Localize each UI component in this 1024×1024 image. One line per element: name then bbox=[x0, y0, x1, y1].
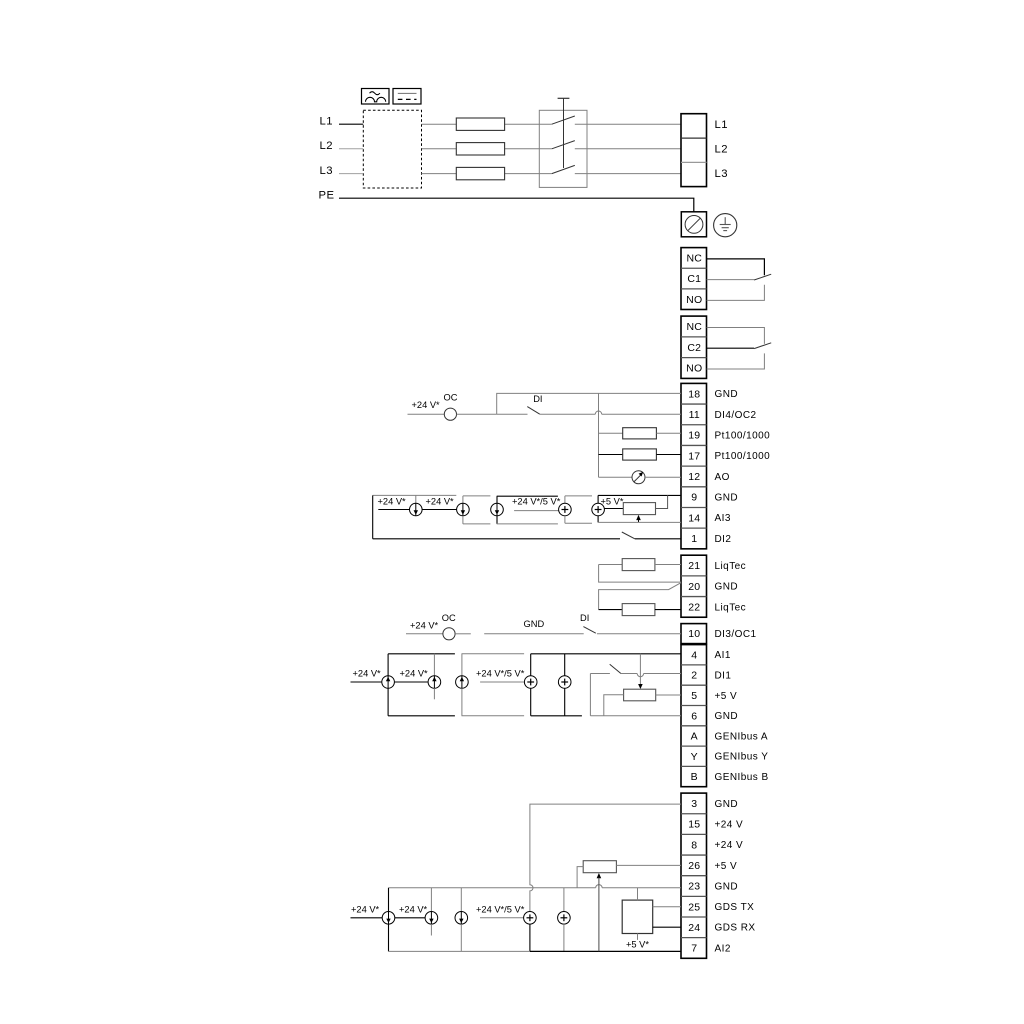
svg-text:DI: DI bbox=[580, 613, 589, 623]
svg-text:L2: L2 bbox=[715, 143, 728, 155]
svg-text:+24 V*: +24 V* bbox=[410, 620, 439, 630]
svg-text:LiqTec: LiqTec bbox=[715, 602, 747, 613]
svg-text:+24 V*/5 V*: +24 V*/5 V* bbox=[512, 497, 561, 507]
svg-text:NC: NC bbox=[686, 321, 702, 333]
svg-text:+24 V: +24 V bbox=[715, 840, 744, 851]
svg-text:L1: L1 bbox=[715, 119, 728, 131]
svg-text:+24 V*: +24 V* bbox=[353, 669, 382, 679]
svg-text:NO: NO bbox=[686, 294, 702, 306]
svg-text:PE: PE bbox=[319, 190, 335, 202]
svg-text:+5 V: +5 V bbox=[715, 861, 738, 872]
svg-text:GDS RX: GDS RX bbox=[715, 923, 756, 934]
svg-text:+24 V*: +24 V* bbox=[399, 905, 428, 915]
svg-text:20: 20 bbox=[688, 581, 700, 593]
svg-text:GDS TX: GDS TX bbox=[715, 902, 755, 913]
svg-text:8: 8 bbox=[691, 839, 697, 851]
svg-text:+24 V*: +24 V* bbox=[351, 905, 380, 915]
svg-text:+24 V: +24 V bbox=[715, 819, 744, 830]
svg-text:A: A bbox=[691, 731, 698, 743]
svg-text:+5 V*: +5 V* bbox=[626, 939, 649, 949]
svg-text:6: 6 bbox=[691, 710, 697, 722]
svg-text:Pt100/1000: Pt100/1000 bbox=[715, 431, 771, 442]
svg-text:GND: GND bbox=[715, 582, 739, 593]
svg-text:DI2: DI2 bbox=[715, 534, 732, 545]
svg-text:26: 26 bbox=[688, 860, 700, 872]
svg-text:22: 22 bbox=[688, 602, 700, 614]
svg-text:10: 10 bbox=[688, 628, 700, 640]
svg-text:L3: L3 bbox=[715, 168, 728, 180]
svg-text:GND: GND bbox=[715, 389, 739, 400]
svg-text:GND: GND bbox=[715, 881, 739, 892]
svg-text:Y: Y bbox=[691, 751, 698, 763]
svg-text:AI3: AI3 bbox=[715, 513, 731, 524]
svg-text:+24 V*: +24 V* bbox=[378, 497, 407, 507]
svg-text:24: 24 bbox=[688, 922, 700, 934]
svg-text:12: 12 bbox=[688, 471, 700, 483]
svg-text:C2: C2 bbox=[687, 342, 701, 354]
svg-text:15: 15 bbox=[688, 819, 700, 831]
svg-text:L3: L3 bbox=[320, 165, 333, 177]
svg-text:1: 1 bbox=[691, 533, 697, 545]
svg-text:L1: L1 bbox=[320, 116, 333, 128]
svg-text:4: 4 bbox=[691, 649, 697, 661]
svg-text:AI1: AI1 bbox=[715, 650, 731, 661]
svg-text:DI1: DI1 bbox=[715, 670, 732, 681]
svg-text:GND: GND bbox=[715, 799, 739, 810]
svg-text:+24 V*/5 V*: +24 V*/5 V* bbox=[476, 669, 525, 679]
svg-text:+5 V*: +5 V* bbox=[601, 497, 624, 507]
svg-text:GENIbus B: GENIbus B bbox=[715, 772, 769, 783]
svg-text:DI3/OC1: DI3/OC1 bbox=[715, 629, 757, 640]
svg-text:23: 23 bbox=[688, 881, 700, 893]
svg-text:7: 7 bbox=[691, 943, 697, 955]
svg-text:C1: C1 bbox=[687, 273, 701, 285]
svg-text:DI4/OC2: DI4/OC2 bbox=[715, 410, 757, 421]
svg-text:Pt100/1000: Pt100/1000 bbox=[715, 451, 771, 462]
svg-text:19: 19 bbox=[688, 430, 700, 442]
svg-text:NC: NC bbox=[686, 253, 702, 265]
svg-text:11: 11 bbox=[689, 409, 700, 421]
svg-text:GND: GND bbox=[715, 711, 739, 722]
svg-text:AI2: AI2 bbox=[715, 943, 731, 954]
svg-text:25: 25 bbox=[688, 901, 700, 913]
svg-text:17: 17 bbox=[688, 450, 700, 462]
svg-text:OC: OC bbox=[444, 393, 458, 403]
svg-text:L2: L2 bbox=[320, 140, 333, 152]
svg-text:+24 V*: +24 V* bbox=[400, 669, 429, 679]
svg-text:5: 5 bbox=[691, 690, 697, 702]
svg-text:9: 9 bbox=[691, 492, 697, 504]
svg-text:+24 V*/5 V*: +24 V*/5 V* bbox=[476, 905, 525, 915]
svg-text:+24 V*: +24 V* bbox=[426, 497, 455, 507]
svg-text:GND: GND bbox=[524, 619, 545, 629]
svg-text:+24 V*: +24 V* bbox=[412, 400, 441, 410]
svg-text:3: 3 bbox=[691, 798, 697, 810]
svg-text:21: 21 bbox=[688, 560, 700, 572]
svg-text:GND: GND bbox=[715, 493, 739, 504]
svg-text:DI: DI bbox=[533, 394, 542, 404]
svg-text:GENIbus Y: GENIbus Y bbox=[715, 752, 769, 763]
svg-text:AO: AO bbox=[715, 472, 730, 483]
svg-text:14: 14 bbox=[688, 512, 700, 524]
svg-text:B: B bbox=[691, 771, 698, 783]
svg-text:OC: OC bbox=[442, 613, 456, 623]
svg-text:GENIbus A: GENIbus A bbox=[715, 731, 769, 742]
svg-text:LiqTec: LiqTec bbox=[715, 561, 747, 572]
svg-text:18: 18 bbox=[688, 388, 700, 400]
svg-text:2: 2 bbox=[691, 670, 697, 682]
svg-text:+5 V: +5 V bbox=[715, 691, 738, 702]
svg-text:NO: NO bbox=[686, 363, 702, 375]
